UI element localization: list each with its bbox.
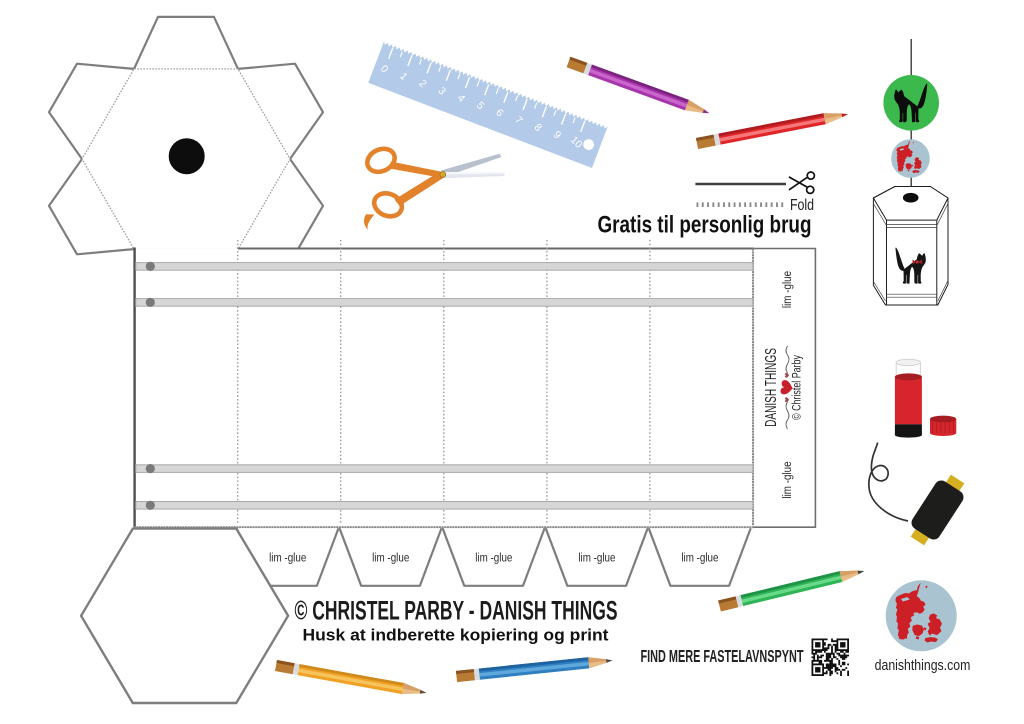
svg-text:Gratis til personlig brug: Gratis til personlig brug	[598, 212, 812, 239]
svg-text:lim -glue: lim -glue	[781, 461, 794, 498]
svg-text:© CHRISTEL PARBY - DANISH THIN: © CHRISTEL PARBY - DANISH THINGS	[295, 596, 618, 626]
svg-text:lim -glue: lim -glue	[475, 552, 512, 565]
svg-text:© Christel Parby: © Christel Parby	[791, 354, 804, 419]
svg-text:lim -glue: lim -glue	[372, 552, 409, 565]
svg-text:FIND MERE FASTELAVNSPYNT: FIND MERE FASTELAVNSPYNT	[641, 646, 804, 666]
svg-text:Husk at indberette kopiering o: Husk at indberette kopiering og print	[303, 626, 609, 645]
svg-text:lim -glue: lim -glue	[578, 552, 615, 565]
svg-text:lim -glue: lim -glue	[269, 552, 306, 565]
svg-text:lim -glue: lim -glue	[681, 552, 718, 565]
svg-text:DANISH THINGS: DANISH THINGS	[761, 348, 779, 427]
svg-text:lim -glue: lim -glue	[781, 271, 794, 308]
svg-text:danishthings.com: danishthings.com	[875, 657, 971, 673]
